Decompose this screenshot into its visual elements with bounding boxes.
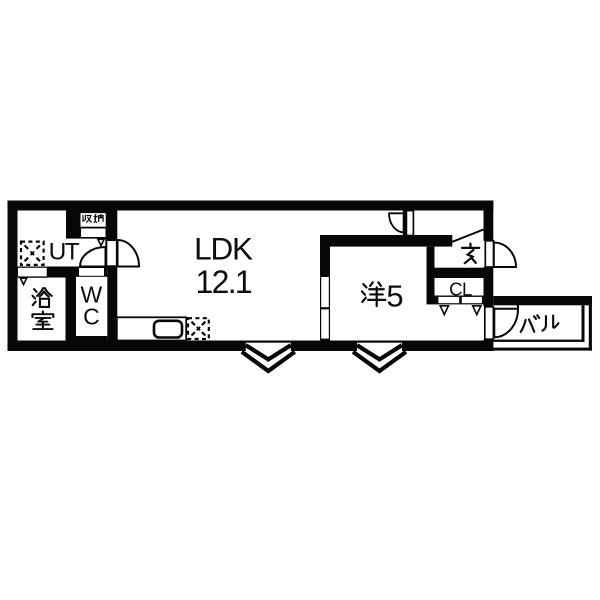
svg-text:12.1: 12.1 bbox=[196, 264, 252, 300]
svg-text:5: 5 bbox=[386, 278, 403, 313]
svg-text:LDK: LDK bbox=[194, 231, 253, 267]
svg-text:C: C bbox=[83, 304, 100, 330]
svg-text:UT: UT bbox=[49, 239, 80, 266]
svg-text:CL: CL bbox=[449, 279, 472, 300]
